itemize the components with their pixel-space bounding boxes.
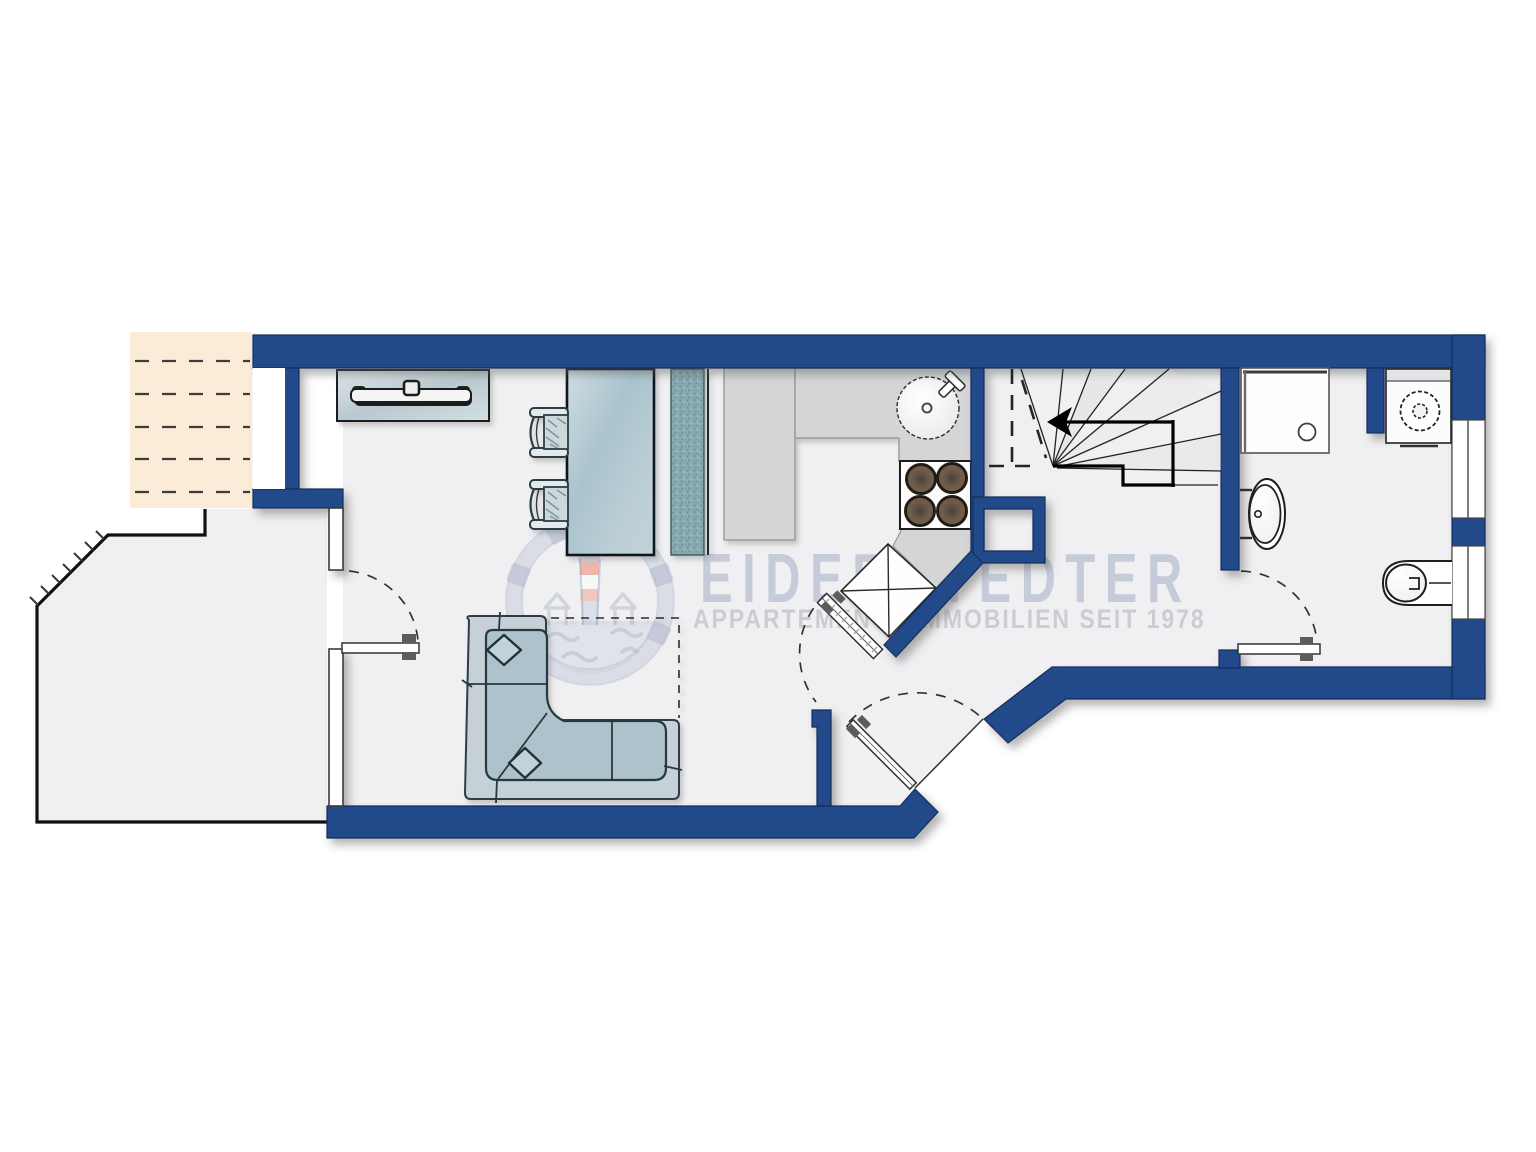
svg-text:APPARTEMENTS IMMOBILIEN SEIT 1: APPARTEMENTS IMMOBILIEN SEIT 1978 [693,604,1206,634]
